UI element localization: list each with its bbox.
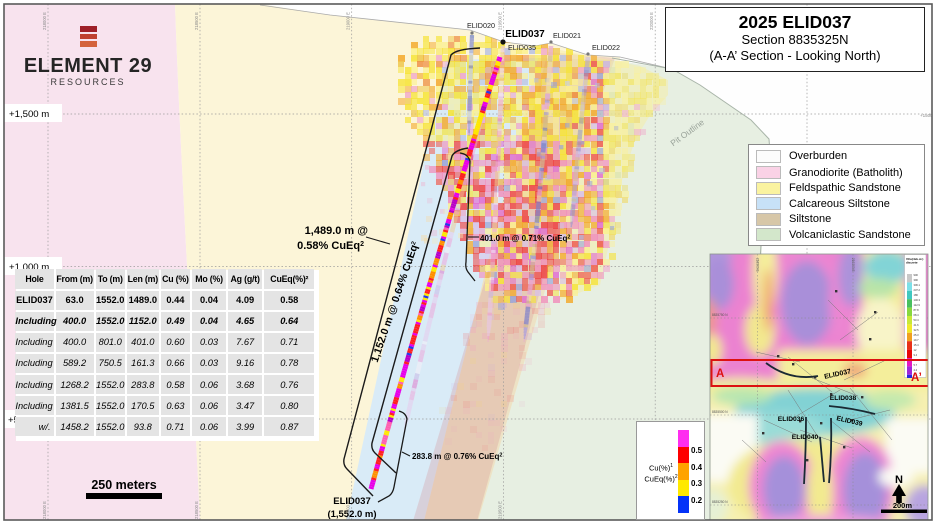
svg-text:218500 E: 218500 E	[194, 501, 199, 519]
svg-text:ELID035: ELID035	[508, 43, 536, 52]
svg-text:8835750 N: 8835750 N	[712, 313, 728, 317]
svg-text:200m: 200m	[893, 501, 913, 510]
svg-text:68.4: 68.4	[914, 313, 920, 317]
svg-text:8835500 N: 8835500 N	[712, 410, 728, 414]
svg-text:219500 E: 219500 E	[498, 501, 503, 519]
svg-text:ELID021: ELID021	[553, 31, 581, 40]
svg-text:15.4: 15.4	[914, 343, 920, 347]
svg-text:25.3: 25.3	[914, 333, 920, 337]
svg-text:219200 E: 219200 E	[851, 258, 855, 272]
svg-text:146.3: 146.3	[914, 298, 921, 302]
svg-text:0.58% CuEq2: 0.58% CuEq2	[297, 240, 364, 252]
svg-text:ELID040: ELID040	[792, 434, 819, 441]
svg-text:+1,500 m: +1,500 m	[9, 109, 49, 120]
svg-text:(1,552.0 m): (1,552.0 m)	[327, 509, 376, 520]
svg-text:A’: A’	[911, 372, 922, 384]
svg-text:A: A	[716, 368, 724, 380]
svg-text:ELID038: ELID038	[830, 395, 857, 402]
svg-text:9.4: 9.4	[914, 353, 918, 357]
svg-text:219500 E: 219500 E	[498, 12, 503, 30]
svg-text:237.2: 237.2	[914, 288, 921, 292]
svg-text:ELID037: ELID037	[505, 29, 545, 40]
svg-text:87.8: 87.8	[914, 308, 920, 312]
svg-text:900: 900	[914, 273, 919, 277]
svg-text:218000 E: 218000 E	[42, 501, 47, 519]
svg-text:1,489.0 m @: 1,489.0 m @	[305, 225, 369, 237]
svg-text:41.6: 41.6	[914, 323, 920, 327]
svg-text:306.1: 306.1	[914, 283, 921, 287]
svg-text:19.7: 19.7	[914, 338, 920, 342]
svg-text:53.4: 53.4	[914, 318, 920, 322]
svg-text:ELID020: ELID020	[467, 21, 495, 30]
svg-text:283.8 m @ 0.76% CuEq2: 283.8 m @ 0.76% CuEq2	[412, 452, 502, 461]
svg-text:+1500: +1500	[920, 113, 933, 118]
svg-text:discrete: discrete	[906, 261, 918, 265]
svg-text:ELID036: ELID036	[778, 416, 805, 423]
svg-text:8835250 N: 8835250 N	[712, 500, 728, 504]
svg-text:219000 E: 219000 E	[346, 12, 351, 30]
svg-text:220000 E: 220000 E	[649, 12, 654, 30]
svg-text:ELID022: ELID022	[592, 43, 620, 52]
svg-text:5.7: 5.7	[914, 363, 918, 367]
svg-text:112.9: 112.9	[914, 303, 921, 307]
svg-text:390: 390	[914, 278, 919, 282]
svg-text:401.0 m @ 0.71% CuEq2: 401.0 m @ 0.71% CuEq2	[480, 234, 570, 243]
svg-text:32.5: 32.5	[914, 328, 920, 332]
svg-text:ELID037: ELID037	[333, 496, 371, 507]
svg-text:218900 E: 218900 E	[756, 258, 760, 272]
svg-text:218500 E: 218500 E	[194, 12, 199, 30]
svg-text:186: 186	[914, 293, 919, 297]
